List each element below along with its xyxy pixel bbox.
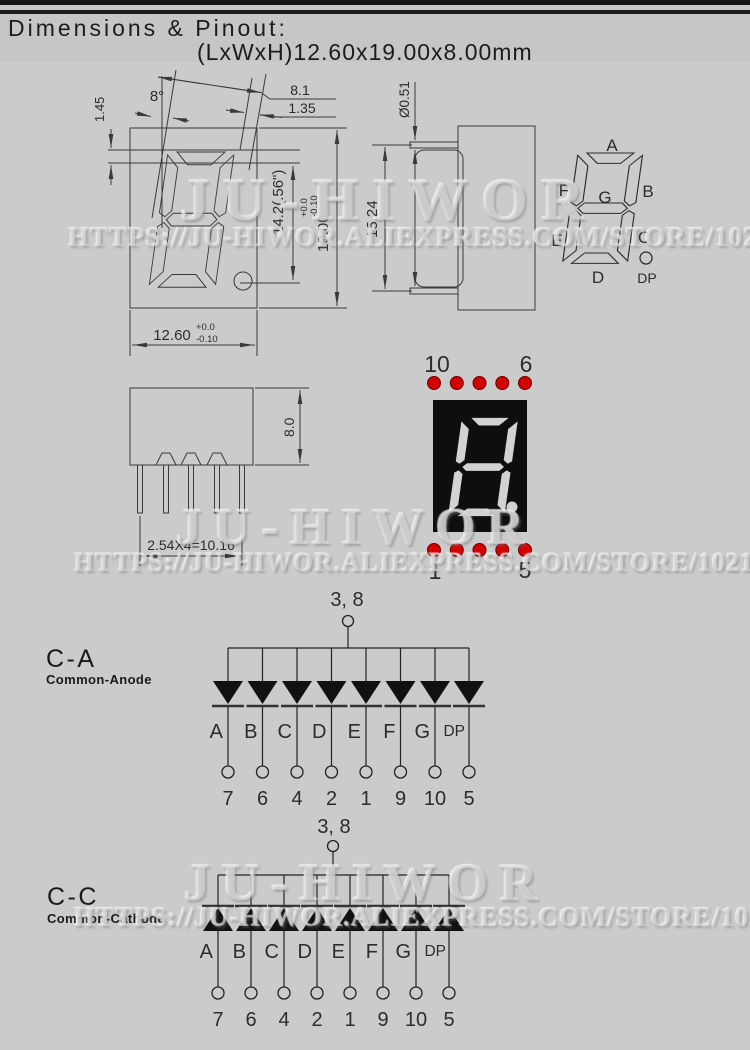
dim-digit-height: 14.2(.56")	[270, 170, 287, 235]
svg-text:1: 1	[360, 788, 371, 810]
segment-label-e: E	[551, 231, 562, 250]
common-anode-subtitle: Common-Anode	[46, 672, 152, 687]
svg-text:D: D	[298, 941, 312, 963]
photo-dp-segment	[507, 502, 518, 513]
svg-text:10: 10	[405, 1009, 427, 1031]
side-pin-top	[410, 142, 458, 148]
dim-pin-pitch: 2.54X4=10.16	[147, 537, 235, 553]
svg-text:7: 7	[212, 1009, 223, 1031]
side-view-dimension-text: Ø0.51 15.24	[364, 81, 412, 238]
segment-reference-diagram: A B C D E F G DP	[551, 136, 656, 287]
cc-common-pins: 3, 8	[317, 816, 350, 838]
dim-digit-width: 8.1	[290, 82, 310, 98]
dim-pin-diameter: Ø0.51	[397, 81, 412, 118]
common-cathode-title: C-C	[47, 883, 99, 912]
svg-text:D: D	[312, 721, 326, 743]
front-dp-outline	[234, 272, 252, 290]
svg-text:C: C	[278, 721, 292, 743]
dim-height-tol-minus: -0.10	[309, 195, 320, 217]
ca-pin-numbers: 7 6 4 2 1 9 10 5	[222, 788, 474, 810]
svg-text:2: 2	[326, 788, 337, 810]
display-photo: 10 6 1 5	[424, 351, 532, 584]
svg-text:6: 6	[257, 788, 268, 810]
ca-common-pins: 3, 8	[330, 589, 363, 611]
technical-drawing-canvas: 1.45 8° 8.1 1.35 19.00 +0.0 -0.10 14.2(.…	[0, 0, 750, 1050]
segment-label-dp: DP	[637, 270, 656, 286]
cc-pin-terminals	[212, 987, 455, 999]
cc-pin-numbers: 7 6 4 2 1 9 10 5	[212, 1009, 454, 1031]
svg-text:10: 10	[424, 788, 446, 810]
svg-text:4: 4	[291, 788, 302, 810]
dim-slant-angle: 8°	[150, 88, 164, 105]
svg-text:9: 9	[395, 788, 406, 810]
ca-pin-terminals	[222, 766, 475, 778]
dim-depth: 8.0	[281, 417, 297, 437]
dim-width-tol-minus: -0.10	[196, 334, 218, 345]
ca-segment-labels: A B C D E F G DP	[210, 721, 465, 743]
photo-pin-top-left: 10	[424, 351, 450, 377]
bottom-view-dimension-text: 8.0 2.54X4=10.16	[147, 417, 297, 553]
photo-bottom-pin-dots	[428, 544, 532, 557]
segment-digit-outline	[562, 153, 642, 263]
side-bezel-outline	[415, 150, 463, 287]
svg-text:9: 9	[377, 1009, 388, 1031]
dim-segment-width: 1.35	[288, 100, 315, 116]
dim-width: 12.60	[153, 327, 191, 344]
svg-text:B: B	[244, 721, 257, 743]
common-cathode-subtitle: Common-Cathode	[47, 911, 165, 926]
ca-common-terminal	[343, 616, 354, 627]
segment-label-b: B	[642, 182, 653, 201]
segment-dp-outline	[640, 252, 652, 264]
svg-text:7: 7	[222, 788, 233, 810]
svg-text:E: E	[332, 941, 345, 963]
svg-text:4: 4	[278, 1009, 289, 1031]
svg-text:C: C	[265, 941, 279, 963]
cc-common-terminal	[328, 841, 339, 852]
svg-text:DP: DP	[443, 723, 465, 740]
common-anode-schematic: 3, 8	[210, 589, 485, 810]
dim-height: 19.00	[315, 214, 332, 252]
segment-labels: A B C D E F G DP	[551, 136, 656, 287]
photo-pin-bottom-left: 1	[429, 558, 442, 584]
common-cathode-schematic: 3, 8	[200, 816, 465, 1031]
segment-label-g: G	[598, 188, 611, 207]
common-anode-title: C-A	[46, 645, 97, 674]
photo-pin-bottom-right: 5	[519, 557, 532, 583]
segment-label-d: D	[592, 268, 604, 287]
segment-label-a: A	[606, 136, 618, 155]
photo-top-pin-dots	[428, 377, 532, 390]
svg-text:A: A	[210, 721, 224, 743]
svg-text:B: B	[233, 941, 246, 963]
product-spec-image: Dimensions & Pinout: (LxWxH)12.60x19.00x…	[0, 0, 750, 1050]
package-outline	[130, 128, 257, 308]
svg-text:6: 6	[245, 1009, 256, 1031]
side-body-outline	[458, 126, 535, 310]
svg-text:2: 2	[311, 1009, 322, 1031]
svg-text:F: F	[383, 721, 395, 743]
svg-text:A: A	[200, 941, 214, 963]
svg-text:5: 5	[443, 1009, 454, 1031]
photo-pin-top-right: 6	[520, 351, 533, 377]
svg-text:5: 5	[463, 788, 474, 810]
dim-width-tol-plus: +0.0	[196, 322, 215, 333]
svg-text:1: 1	[344, 1009, 355, 1031]
svg-text:F: F	[366, 941, 378, 963]
svg-text:G: G	[395, 941, 411, 963]
bottom-pins	[138, 465, 245, 513]
cc-diode-triangles	[203, 908, 464, 931]
segment-label-c: C	[638, 228, 650, 247]
svg-text:G: G	[414, 721, 430, 743]
cc-segment-labels: A B C D E F G DP	[200, 941, 446, 963]
svg-text:DP: DP	[424, 943, 446, 960]
dim-top-margin: 1.45	[92, 97, 107, 122]
ca-diode-triangles	[213, 681, 484, 704]
dim-row-spacing: 15.24	[364, 200, 381, 238]
side-pin-bottom	[410, 288, 458, 294]
svg-text:E: E	[348, 721, 361, 743]
segment-label-f: F	[559, 181, 569, 200]
